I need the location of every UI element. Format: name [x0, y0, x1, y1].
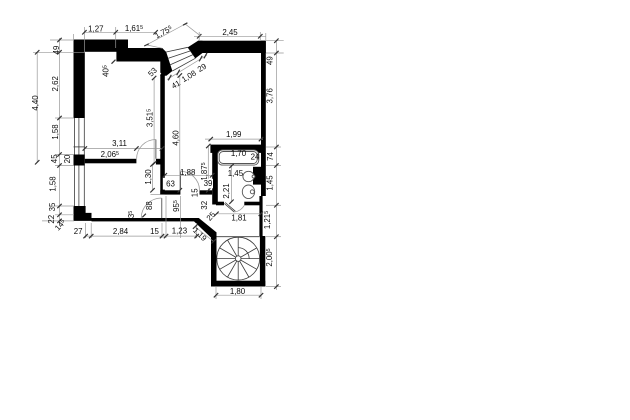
svg-text:1,875: 1,875 [200, 162, 209, 180]
svg-text:2,21: 2,21 [222, 183, 231, 198]
svg-text:2,84: 2,84 [113, 227, 129, 236]
svg-text:1,88: 1,88 [180, 168, 196, 177]
svg-text:2,005: 2,005 [265, 248, 274, 266]
svg-text:49: 49 [52, 45, 61, 54]
svg-text:27: 27 [74, 227, 83, 236]
svg-text:1,08: 1,08 [180, 68, 198, 84]
svg-text:63: 63 [166, 180, 175, 189]
svg-text:49: 49 [265, 56, 274, 65]
svg-text:41: 41 [170, 78, 182, 90]
svg-text:3,76: 3,76 [265, 88, 274, 104]
svg-text:1,615: 1,615 [125, 24, 143, 33]
svg-text:1,27: 1,27 [88, 24, 103, 33]
svg-text:3,11: 3,11 [112, 139, 127, 148]
svg-text:1,99: 1,99 [226, 130, 242, 139]
svg-text:35: 35 [48, 202, 57, 211]
svg-text:1,58: 1,58 [49, 176, 58, 192]
svg-text:15: 15 [150, 227, 159, 236]
svg-text:955: 955 [172, 200, 181, 212]
svg-text:1,81: 1,81 [231, 214, 246, 223]
svg-text:2,45: 2,45 [222, 28, 238, 37]
svg-text:25: 25 [205, 210, 218, 223]
svg-text:88: 88 [145, 201, 154, 210]
svg-text:15: 15 [190, 188, 199, 197]
svg-text:1,215: 1,215 [263, 211, 272, 229]
svg-text:45: 45 [50, 154, 59, 163]
svg-text:4,40: 4,40 [31, 95, 40, 111]
svg-text:2,62: 2,62 [51, 76, 60, 91]
svg-text:22: 22 [47, 215, 56, 224]
svg-text:405: 405 [102, 65, 111, 77]
svg-text:1,80: 1,80 [230, 287, 246, 296]
svg-text:1,58: 1,58 [51, 124, 60, 140]
svg-text:1,23: 1,23 [172, 227, 188, 236]
svg-text:4,60: 4,60 [171, 130, 180, 146]
svg-text:3,515: 3,515 [145, 109, 154, 127]
svg-text:2,065: 2,065 [101, 150, 119, 159]
svg-text:74: 74 [266, 152, 275, 161]
svg-text:1,30: 1,30 [144, 169, 153, 185]
svg-text:24: 24 [251, 153, 260, 162]
svg-text:20: 20 [63, 154, 72, 163]
svg-text:32: 32 [200, 201, 209, 210]
svg-text:39: 39 [204, 179, 213, 188]
svg-text:29: 29 [196, 61, 209, 74]
svg-text:1,45: 1,45 [228, 169, 244, 178]
svg-text:1,70: 1,70 [231, 149, 247, 158]
svg-text:1,45: 1,45 [266, 175, 275, 191]
svg-text:35: 35 [127, 211, 136, 218]
